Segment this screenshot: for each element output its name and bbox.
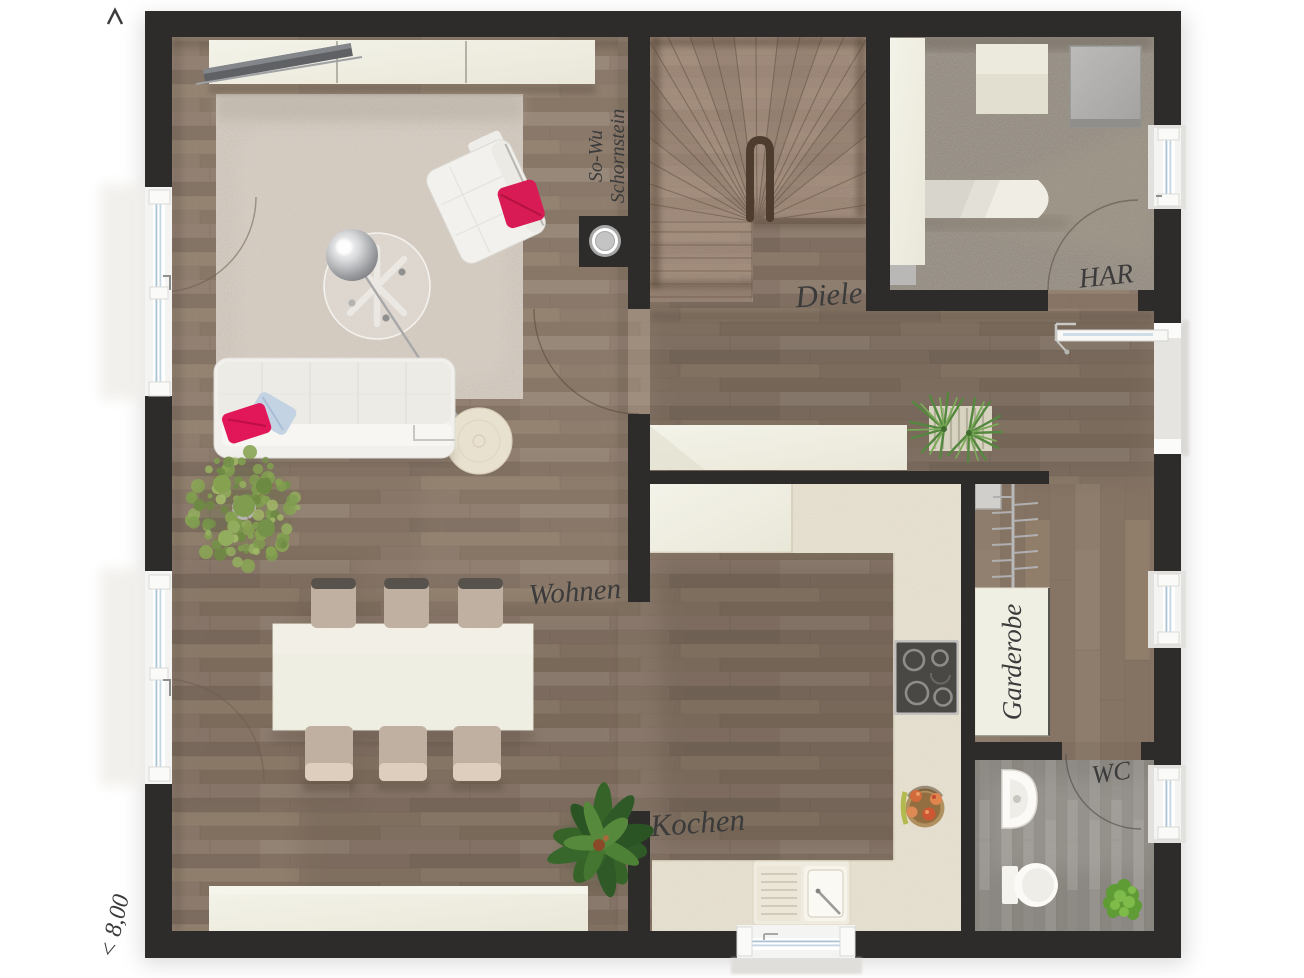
- svg-text:So-Wu: So-Wu: [585, 130, 607, 182]
- svg-text:Wohnen: Wohnen: [528, 573, 622, 611]
- svg-text:Garderobe: Garderobe: [997, 604, 1027, 720]
- svg-text:Kochen: Kochen: [648, 802, 746, 844]
- svg-text:HAR: HAR: [1076, 258, 1134, 295]
- svg-text:WC: WC: [1090, 755, 1133, 789]
- svg-text:Schornstein: Schornstein: [607, 109, 629, 203]
- svg-text:Diele: Diele: [793, 275, 864, 315]
